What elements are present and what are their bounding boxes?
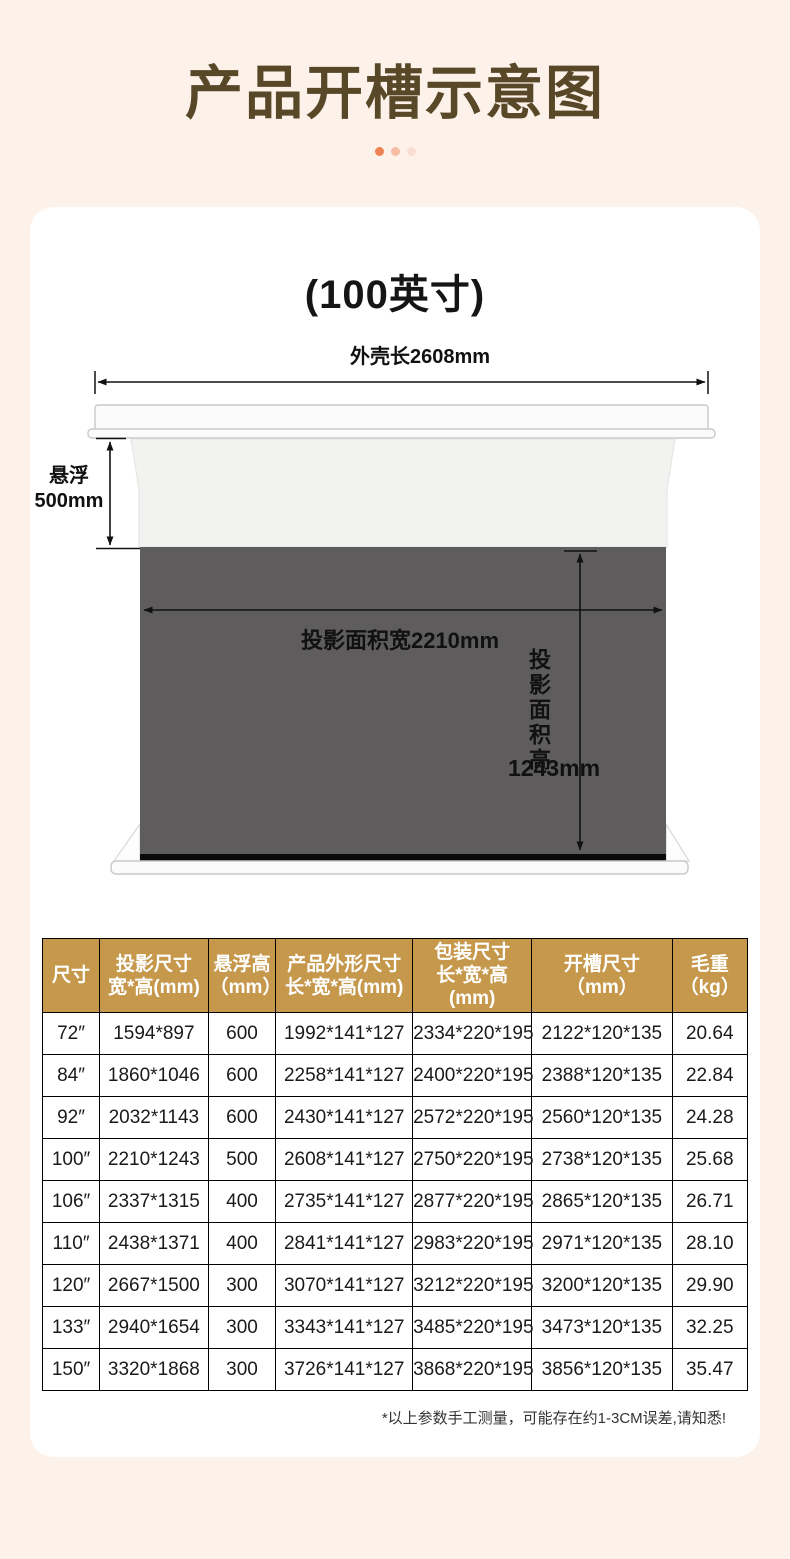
table-cell: 300 [208,1307,276,1349]
carousel-dots [0,147,790,156]
table-cell: 2334*220*195 [413,1013,532,1055]
table-cell: 3856*120*135 [532,1349,672,1391]
table-row: 106″2337*13154002735*141*1272877*220*195… [43,1181,748,1223]
table-cell: 2940*1654 [100,1307,209,1349]
table-cell: 24.28 [672,1097,747,1139]
table-cell: 2971*120*135 [532,1223,672,1265]
projection-width-label: 投影面积宽2210mm [301,623,499,655]
table-cell: 92″ [43,1097,100,1139]
column-label: 毛重 [674,953,746,976]
table-row: 92″2032*11436002430*141*1272572*220*1952… [43,1097,748,1139]
right-gusset [666,824,689,861]
table-cell: 500 [208,1139,276,1181]
table-cell: 28.10 [672,1223,747,1265]
table-cell: 2388*120*135 [532,1055,672,1097]
table-cell: 2877*220*195 [413,1181,532,1223]
table-cell: 72″ [43,1013,100,1055]
table-cell: 400 [208,1181,276,1223]
table-cell: 133″ [43,1307,100,1349]
table-cell: 3320*1868 [100,1349,209,1391]
table-cell: 2337*1315 [100,1181,209,1223]
table-header-cell: 尺寸 [43,939,100,1013]
table-cell: 26.71 [672,1181,747,1223]
column-sublabel: 长*宽*高(mm) [277,976,411,999]
column-sublabel: （kg） [674,976,746,999]
column-label: 悬浮高 [210,953,275,976]
column-label: 尺寸 [44,964,98,987]
table-cell: 3868*220*195 [413,1349,532,1391]
table-cell: 600 [208,1055,276,1097]
table-cell: 20.64 [672,1013,747,1055]
column-sublabel: （mm） [533,976,670,999]
table-cell: 25.68 [672,1139,747,1181]
table-cell: 2032*1143 [100,1097,209,1139]
table-cell: 1992*141*127 [276,1013,413,1055]
table-cell: 2258*141*127 [276,1055,413,1097]
spec-table: 尺寸 投影尺寸 宽*高(mm) 悬浮高 （mm） 产品外形尺寸 长*宽*高(mm… [42,938,748,1391]
table-cell: 3070*141*127 [276,1265,413,1307]
projection-height-value: 1243mm [508,755,600,782]
table-cell: 3485*220*195 [413,1307,532,1349]
page-title: 产品开槽示意图 [0,46,790,130]
table-row: 110″2438*13714002841*141*1272983*220*195… [43,1223,748,1265]
table-cell: 2983*220*195 [413,1223,532,1265]
table-cell: 400 [208,1223,276,1265]
table-cell: 106″ [43,1181,100,1223]
table-cell: 2735*141*127 [276,1181,413,1223]
diagram-subtitle: (100英寸) [30,262,760,320]
table-cell: 2865*120*135 [532,1181,672,1223]
table-cell: 2210*1243 [100,1139,209,1181]
table-row: 133″2940*16543003343*141*1273485*220*195… [43,1307,748,1349]
table-cell: 2400*220*195 [413,1055,532,1097]
table-cell: 600 [208,1097,276,1139]
table-cell: 3473*120*135 [532,1307,672,1349]
table-cell: 35.47 [672,1349,747,1391]
table-cell: 1594*897 [100,1013,209,1055]
table-cell: 3200*120*135 [532,1265,672,1307]
table-header-cell: 产品外形尺寸 长*宽*高(mm) [276,939,413,1013]
left-gusset [114,824,140,861]
column-label: 投影尺寸 [101,953,207,976]
table-cell: 1860*1046 [100,1055,209,1097]
table-cell: 2667*1500 [100,1265,209,1307]
table-cell: 300 [208,1265,276,1307]
carousel-dot[interactable] [375,147,384,156]
column-sublabel: （mm） [210,976,275,999]
table-row: 150″3320*18683003726*141*1273868*220*195… [43,1349,748,1391]
housing-flange [88,429,715,438]
carousel-dot[interactable] [407,147,416,156]
projection-area [140,547,666,854]
column-label: 开槽尺寸 [533,953,670,976]
screen-diagram: 外壳长2608mm 悬浮 500mm 投影面积宽2210mm 投影面积高 124… [30,330,760,890]
table-cell: 600 [208,1013,276,1055]
table-cell: 29.90 [672,1265,747,1307]
spec-table-body: 72″1594*8976001992*141*1272334*220*19521… [43,1013,748,1391]
table-header-row: 尺寸 投影尺寸 宽*高(mm) 悬浮高 （mm） 产品外形尺寸 长*宽*高(mm… [43,939,748,1013]
column-label: 产品外形尺寸 [277,953,411,976]
table-cell: 150″ [43,1349,100,1391]
table-cell: 2122*120*135 [532,1013,672,1055]
table-cell: 2438*1371 [100,1223,209,1265]
table-header-cell: 悬浮高 （mm） [208,939,276,1013]
table-cell: 100″ [43,1139,100,1181]
housing-shape [95,405,708,432]
table-cell: 110″ [43,1223,100,1265]
column-sublabel: 长*宽*高(mm) [414,964,530,1010]
table-cell: 120″ [43,1265,100,1307]
spec-card: (100英寸) [30,207,760,1457]
suspend-label-line1: 悬浮 [34,464,104,489]
table-cell: 3212*220*195 [413,1265,532,1307]
table-cell: 84″ [43,1055,100,1097]
table-cell: 2572*220*195 [413,1097,532,1139]
shell-length-label: 外壳长2608mm [350,340,490,369]
page: 产品开槽示意图 (100英寸) [0,0,790,1559]
table-cell: 300 [208,1349,276,1391]
table-row: 72″1594*8976001992*141*1272334*220*19521… [43,1013,748,1055]
table-cell: 3343*141*127 [276,1307,413,1349]
table-cell: 2750*220*195 [413,1139,532,1181]
table-cell: 2738*120*135 [532,1139,672,1181]
carousel-dot[interactable] [391,147,400,156]
table-row: 120″2667*15003003070*141*1273212*220*195… [43,1265,748,1307]
footnote: *以上参数手工测量，可能存在约1-3CM误差,请知悉! [382,1407,726,1428]
screen-upper-area [131,439,675,547]
table-header-cell: 投影尺寸 宽*高(mm) [100,939,209,1013]
table-cell: 22.84 [672,1055,747,1097]
table-cell: 32.25 [672,1307,747,1349]
column-sublabel: 宽*高(mm) [101,976,207,999]
column-label: 包装尺寸 [414,941,530,964]
table-header-cell: 包装尺寸 长*宽*高(mm) [413,939,532,1013]
table-cell: 2608*141*127 [276,1139,413,1181]
table-cell: 2560*120*135 [532,1097,672,1139]
table-cell: 3726*141*127 [276,1349,413,1391]
diagram-graphic [30,330,760,890]
table-row: 100″2210*12435002608*141*1272750*220*195… [43,1139,748,1181]
table-row: 84″1860*10466002258*141*1272400*220*1952… [43,1055,748,1097]
suspend-label-line2: 500mm [34,489,104,514]
table-header-cell: 开槽尺寸 （mm） [532,939,672,1013]
base-bar [111,861,688,874]
table-cell: 2430*141*127 [276,1097,413,1139]
suspend-height-label: 悬浮 500mm [34,464,104,514]
table-cell: 2841*141*127 [276,1223,413,1265]
table-header-cell: 毛重 （kg） [672,939,747,1013]
